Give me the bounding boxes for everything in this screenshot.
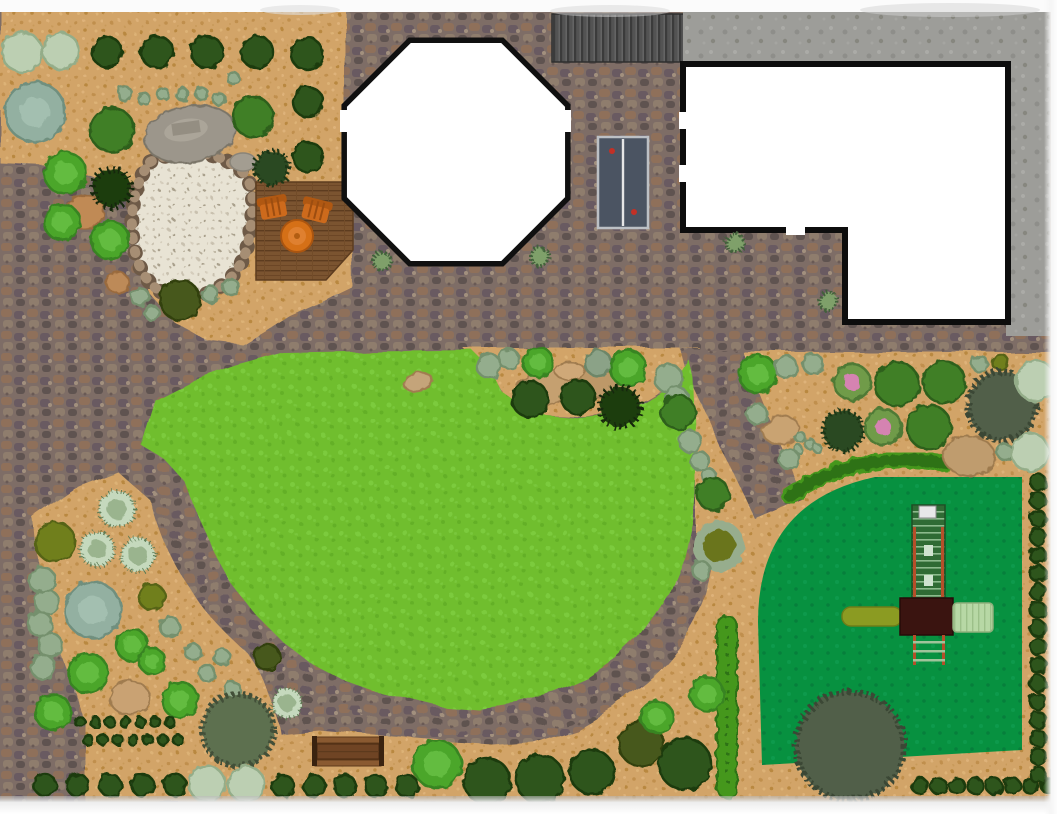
tree-canopy	[823, 411, 863, 451]
tree-canopy	[1030, 492, 1046, 508]
sage-tree	[775, 356, 797, 378]
dark-tree	[1030, 584, 1046, 600]
tree-canopy-highlight	[170, 690, 190, 710]
tree-canopy	[160, 280, 200, 320]
dark-tree	[1030, 767, 1046, 783]
tree-canopy	[692, 561, 710, 579]
dark-tree	[1030, 694, 1046, 710]
tree-canopy	[34, 774, 56, 796]
tree-canopy-highlight	[145, 654, 159, 668]
tree-canopy	[145, 306, 159, 320]
bridge-step	[924, 545, 933, 556]
dark-tree	[1030, 547, 1046, 563]
dark-tree	[293, 142, 323, 172]
tree-canopy-highlight	[875, 419, 891, 435]
bright-tree	[690, 677, 724, 711]
tree-canopy	[1030, 675, 1046, 691]
sage-tree	[202, 286, 218, 302]
tree-canopy	[223, 279, 239, 295]
dark-tree	[949, 778, 965, 794]
tree-canopy	[373, 252, 391, 270]
tree-canopy	[813, 444, 821, 452]
bright-tree	[413, 740, 461, 788]
bench-north	[315, 737, 381, 743]
sage-tree	[692, 561, 710, 579]
tree-canopy	[141, 36, 173, 68]
tree-canopy-highlight	[648, 708, 666, 726]
tree-canopy	[254, 644, 280, 670]
tree-canopy-highlight	[123, 636, 141, 654]
mid-tree	[90, 108, 134, 152]
tree-canopy	[35, 522, 75, 562]
spiky-tree	[600, 387, 640, 427]
bright-tree	[35, 694, 71, 730]
tree-canopy	[196, 88, 208, 100]
bridge-rail-left	[913, 527, 916, 597]
ladder-rung	[913, 641, 945, 644]
sidewalk-right	[1006, 8, 1050, 336]
tree-canopy	[176, 88, 188, 100]
dark-tree	[141, 36, 173, 68]
spiky-tree	[93, 169, 131, 207]
tree-canopy	[986, 778, 1002, 794]
sage-tree	[779, 449, 799, 469]
ball-tree	[373, 252, 391, 270]
tree-canopy	[697, 478, 729, 510]
tree-canopy-highlight	[79, 596, 107, 624]
tree-canopy-highlight	[107, 499, 127, 519]
tree-canopy	[1030, 767, 1046, 783]
tree-canopy	[233, 97, 273, 137]
tree-canopy	[1030, 639, 1046, 655]
tree-canopy	[726, 234, 744, 252]
dark-tree	[164, 774, 186, 796]
tree-canopy	[796, 692, 904, 800]
tree-canopy	[1011, 433, 1049, 471]
tree-canopy	[875, 362, 919, 406]
tree-canopy	[396, 775, 418, 797]
boulder	[555, 362, 585, 380]
tree-canopy	[2, 32, 42, 72]
dark-tree	[291, 38, 323, 70]
ladder-rung	[913, 659, 945, 662]
ladder-rung	[913, 650, 945, 653]
pink-tree	[834, 364, 870, 400]
sage-tree	[972, 356, 988, 372]
paddle	[631, 209, 637, 215]
tree-canopy	[199, 665, 215, 681]
dark-tree	[241, 36, 273, 68]
tree-canopy	[160, 617, 180, 637]
tree-canopy	[227, 72, 239, 84]
tree-canopy	[570, 750, 614, 794]
tree-canopy	[949, 778, 965, 794]
landscape-plan-page	[0, 0, 1057, 814]
tree-canopy	[67, 774, 89, 796]
pond-rock-east	[230, 153, 256, 171]
mid-tree	[923, 361, 965, 403]
tree-canopy	[213, 93, 225, 105]
tree-canopy	[1030, 730, 1046, 746]
dark-tree	[1030, 474, 1046, 490]
dark-tree	[912, 778, 928, 794]
tree-canopy	[659, 738, 711, 790]
bright-tree	[68, 653, 108, 693]
bright-tree	[139, 648, 165, 674]
dark-tree	[272, 775, 294, 797]
tree-canopy	[99, 774, 121, 796]
dark-tree	[34, 774, 56, 796]
dark-tree	[67, 774, 89, 796]
page-margin-smudge	[860, 3, 1040, 17]
dark-tree	[132, 774, 154, 796]
tree-canopy	[1030, 694, 1046, 710]
bright-tree	[44, 152, 86, 194]
dark-tree	[158, 735, 168, 745]
page-margin-smudge	[550, 5, 670, 17]
gazebo-door-west	[340, 110, 348, 132]
tree-canopy	[661, 395, 695, 429]
darkfir-tree	[255, 151, 289, 185]
dark-tree	[92, 37, 122, 67]
tree-canopy	[1030, 547, 1046, 563]
bright-tree	[641, 701, 673, 733]
sage-tree	[477, 354, 501, 378]
dark-tree	[931, 778, 947, 794]
gazebo-octagon	[344, 40, 568, 264]
gazebo-door-east	[563, 110, 571, 132]
dark-tree	[365, 775, 387, 797]
sage-tree	[31, 655, 55, 679]
stairs	[552, 14, 685, 62]
tree-canopy	[1030, 566, 1046, 582]
darkfir-tree	[823, 411, 863, 451]
varieg-tree	[121, 538, 155, 572]
tree-canopy	[1030, 657, 1046, 673]
tree-canopy	[43, 33, 79, 69]
tree-canopy-highlight	[424, 751, 450, 777]
tree-canopy	[272, 775, 294, 797]
tree-canopy	[600, 387, 640, 427]
tree-canopy	[83, 735, 93, 745]
dark-tree	[173, 735, 183, 745]
tree-canopy	[165, 717, 175, 727]
tree-canopy	[120, 717, 130, 727]
pale-tree	[43, 33, 79, 69]
tree-canopy-highlight	[618, 358, 638, 378]
dark-tree	[986, 778, 1002, 794]
dark-tree	[1005, 778, 1021, 794]
dark-tree	[1030, 730, 1046, 746]
tree-canopy	[90, 108, 134, 152]
tree-canopy	[1030, 529, 1046, 545]
dark-tree	[1030, 566, 1046, 582]
sage-tree	[35, 590, 59, 614]
dark-tree	[1030, 657, 1046, 673]
feather-tree	[202, 694, 274, 766]
bridge-step	[924, 575, 933, 586]
sage-tree	[691, 452, 709, 470]
tree-canopy-highlight	[100, 230, 121, 251]
dark-tree	[120, 717, 130, 727]
tree-canopy	[93, 169, 131, 207]
tree-canopy	[75, 717, 85, 727]
tree-canopy	[164, 774, 186, 796]
dark-tree	[1030, 675, 1046, 691]
sagegray-tree	[585, 350, 611, 376]
tree-canopy	[128, 735, 138, 745]
sage-tree	[679, 430, 701, 452]
dark-tree	[75, 717, 85, 727]
dark-tree	[659, 738, 711, 790]
picnic-table	[312, 736, 384, 766]
tree-canopy-highlight	[279, 695, 296, 712]
dark-tree	[128, 735, 138, 745]
building-door-west-1	[679, 112, 688, 129]
ball-tree	[531, 248, 549, 266]
tree-canopy	[185, 644, 201, 660]
tree-canopy	[139, 584, 165, 610]
sage-tree	[185, 644, 201, 660]
sage-tree	[803, 354, 823, 374]
olive-tree	[139, 584, 165, 610]
tree-canopy	[531, 248, 549, 266]
tree-canopy-highlight	[77, 662, 99, 684]
varieg-tree	[272, 688, 302, 718]
tree-canopy-highlight	[52, 212, 72, 232]
ball-tree	[726, 234, 744, 252]
tree-canopy	[691, 452, 709, 470]
tree-canopy	[38, 633, 62, 657]
dark-tree	[1030, 511, 1046, 527]
sage-tree	[29, 567, 55, 593]
dark-tree	[968, 778, 984, 794]
tree-canopy-highlight	[844, 374, 860, 390]
mid-tree	[661, 395, 695, 429]
tree-canopy	[1030, 749, 1046, 765]
paddle	[609, 148, 615, 154]
sage-tree	[227, 72, 239, 84]
tree-canopy	[992, 354, 1008, 370]
dark-tree	[98, 735, 108, 745]
tree-canopy	[31, 655, 55, 679]
dark-tree	[150, 717, 160, 727]
tree-canopy	[679, 430, 701, 452]
mid-tree	[233, 97, 273, 137]
tree-canopy-highlight	[43, 702, 63, 722]
bright-tree	[610, 350, 646, 386]
sage-tree	[214, 649, 230, 665]
tree-canopy-highlight	[748, 364, 769, 385]
blue-tree	[5, 82, 65, 142]
ping-pong-table	[598, 137, 648, 228]
dark-tree	[83, 735, 93, 745]
tree-canopy-highlight	[129, 546, 148, 565]
dark-tree	[303, 775, 325, 797]
sage-tree	[223, 279, 239, 295]
deck-table-center	[294, 233, 300, 239]
pale-tree	[2, 32, 42, 72]
tree-canopy	[143, 735, 153, 745]
tree-canopy	[968, 778, 984, 794]
slide	[953, 603, 993, 632]
tree-canopy	[912, 778, 928, 794]
tree-canopy	[293, 142, 323, 172]
table-post-left	[312, 736, 317, 766]
tree-canopy	[241, 36, 273, 68]
gazebo	[340, 40, 571, 264]
dark-tree	[113, 735, 123, 745]
sage-tree	[747, 404, 767, 424]
tree-canopy	[775, 356, 797, 378]
sage-tree	[813, 444, 821, 452]
tree-canopy	[561, 380, 595, 414]
tree-canopy	[150, 717, 160, 727]
tree-canopy	[1030, 712, 1046, 728]
dark-tree	[1030, 620, 1046, 636]
tree-canopy	[131, 288, 149, 306]
dark-tree	[1030, 749, 1046, 765]
dark-tree	[396, 775, 418, 797]
sage-tree	[118, 87, 132, 101]
tree-canopy	[516, 755, 564, 803]
tree-canopy	[138, 93, 150, 105]
platform	[900, 598, 953, 635]
page-margin-smudge	[260, 5, 340, 15]
bright-tree	[91, 221, 129, 259]
sage-tree	[795, 432, 805, 442]
deck	[256, 182, 353, 280]
tree-canopy	[303, 775, 325, 797]
tree-canopy	[499, 349, 519, 369]
darkolive-tree	[160, 280, 200, 320]
ball-tree	[819, 292, 837, 310]
tree-canopy	[1030, 620, 1046, 636]
tree-canopy	[92, 37, 122, 67]
bridge-rail-right	[941, 527, 944, 597]
dark-tree	[516, 755, 564, 803]
sage-tree	[38, 633, 62, 657]
tree-canopy-highlight	[20, 97, 50, 127]
sage-tree	[196, 88, 208, 100]
dark-tree	[105, 717, 115, 727]
blue-tree	[65, 582, 121, 638]
dark-tree	[90, 717, 100, 727]
darkolive-tree	[254, 644, 280, 670]
tree-canopy	[795, 432, 805, 442]
tree-canopy	[334, 775, 356, 797]
tree-canopy	[1030, 602, 1046, 618]
sidewalk-top	[683, 8, 1048, 64]
dark-tree	[293, 87, 323, 117]
mid-tree	[875, 362, 919, 406]
tree-canopy	[819, 292, 837, 310]
dark-tree	[570, 750, 614, 794]
tree-canopy	[113, 735, 123, 745]
dark-tree	[143, 735, 153, 745]
tree-canopy	[365, 775, 387, 797]
tree-canopy	[29, 567, 55, 593]
tree-canopy-highlight	[88, 540, 107, 559]
bright-tree	[739, 355, 777, 393]
varieg-tree	[80, 532, 114, 566]
tree-canopy	[972, 356, 988, 372]
landscape-plan-canvas	[0, 0, 1057, 814]
bridge-top-platform	[919, 506, 936, 518]
bright-tree	[44, 204, 80, 240]
dark-tree	[334, 775, 356, 797]
tree-canopy	[1030, 474, 1046, 490]
tree-canopy	[803, 354, 823, 374]
sage-tree	[160, 617, 180, 637]
table-post-right	[379, 736, 384, 766]
sage-tree	[138, 93, 150, 105]
tree-canopy	[255, 151, 289, 185]
dark-tree	[1030, 602, 1046, 618]
olive-tree	[35, 522, 75, 562]
dark-tree	[1030, 492, 1046, 508]
tree-canopy	[585, 350, 611, 376]
tree-canopy	[132, 774, 154, 796]
tree-canopy	[907, 405, 951, 449]
boulder	[110, 681, 150, 715]
dark-tree	[99, 774, 121, 796]
mid-tree	[697, 478, 729, 510]
dark-tree	[135, 717, 145, 727]
tree-canopy	[1030, 511, 1046, 527]
tree-canopy	[90, 717, 100, 727]
tree-canopy	[747, 404, 767, 424]
tree-canopy	[173, 735, 183, 745]
tree-canopy	[191, 36, 223, 68]
tree-canopy-highlight	[530, 354, 547, 371]
page-margin-bottom	[0, 796, 1057, 814]
tree-canopy	[931, 778, 947, 794]
dark-tree	[1030, 639, 1046, 655]
table-plank-line	[317, 751, 379, 752]
sage-tree	[145, 306, 159, 320]
sage-tree	[213, 93, 225, 105]
tree-canopy	[293, 87, 323, 117]
dark-tree	[191, 36, 223, 68]
tree-canopy	[477, 354, 501, 378]
table-center-line	[622, 139, 624, 226]
dark-tree	[561, 380, 595, 414]
dark-tree	[512, 381, 548, 417]
sage-tree	[499, 349, 519, 369]
tree-canopy	[157, 88, 169, 100]
tree-canopy	[923, 361, 965, 403]
tree-canopy	[1005, 778, 1021, 794]
pink-tree	[865, 409, 901, 445]
featherdark-tree	[796, 692, 904, 800]
tree-canopy	[105, 717, 115, 727]
varieg-tree	[99, 491, 135, 527]
tree-canopy-highlight	[698, 685, 717, 704]
bench-south	[315, 760, 381, 766]
bright-tree	[162, 682, 198, 718]
tree-canopy	[1030, 584, 1046, 600]
climber-beam	[842, 607, 902, 626]
tree-canopy	[158, 735, 168, 745]
dark-tree	[1030, 712, 1046, 728]
building-door-west-2	[679, 165, 688, 182]
sage-tree	[199, 665, 215, 681]
bright-tree	[523, 347, 553, 377]
sage-tree	[176, 88, 188, 100]
tree-canopy	[214, 649, 230, 665]
tree-canopy	[98, 735, 108, 745]
